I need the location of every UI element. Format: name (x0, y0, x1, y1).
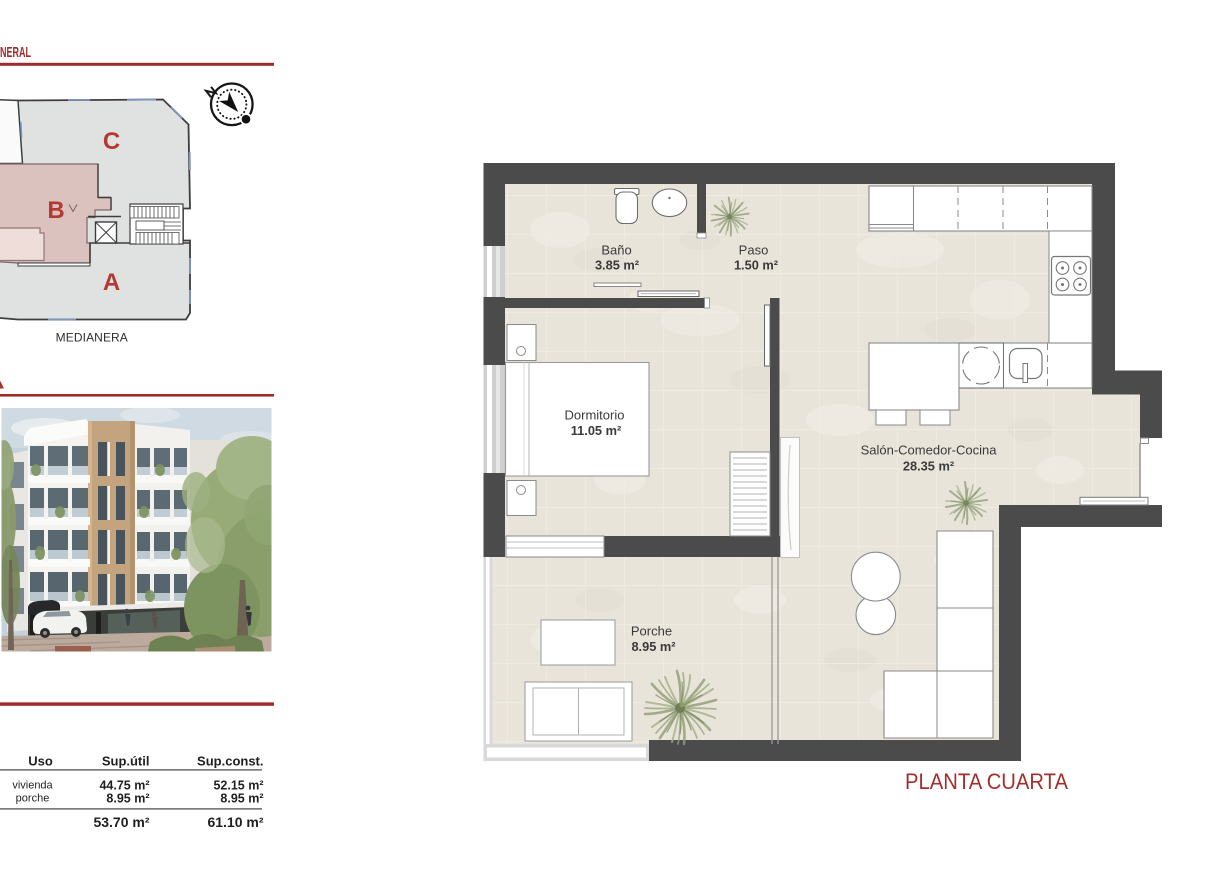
svg-text:61.10 m²: 61.10 m² (207, 814, 263, 830)
svg-text:53.70 m²: 53.70 m² (93, 814, 149, 830)
svg-text:PLANTA CUARTA: PLANTA CUARTA (905, 769, 1068, 794)
svg-text:vivienda: vivienda (12, 780, 53, 792)
svg-text:B: B (47, 197, 64, 224)
svg-text:A: A (103, 269, 120, 296)
svg-text:8.95 m²: 8.95 m² (106, 792, 149, 806)
svg-text:Porche: Porche (631, 624, 672, 639)
svg-text:1.50 m²: 1.50 m² (734, 258, 778, 273)
svg-text:Sup.const.: Sup.const. (197, 754, 263, 769)
svg-text:NERAL: NERAL (0, 44, 31, 61)
svg-text:MEDIANERA: MEDIANERA (56, 331, 128, 345)
svg-text:C: C (103, 128, 120, 155)
svg-text:Dormitorio: Dormitorio (565, 408, 625, 423)
svg-text:Sup.útil: Sup.útil (102, 754, 150, 769)
svg-text:28.35 m²: 28.35 m² (903, 459, 954, 474)
svg-text:Paso: Paso (739, 243, 769, 258)
svg-text:Baño: Baño (601, 243, 631, 258)
svg-text:3.85 m²: 3.85 m² (595, 258, 639, 273)
svg-text:porche: porche (16, 793, 50, 805)
svg-text:8.95 m²: 8.95 m² (631, 639, 675, 654)
svg-text:Uso: Uso (28, 754, 53, 769)
svg-text:Salón-Comedor-Cocina: Salón-Comedor-Cocina (861, 443, 998, 458)
svg-text:52.15 m²: 52.15 m² (213, 779, 263, 793)
svg-text:8.95 m²: 8.95 m² (220, 792, 263, 806)
svg-text:44.75 m²: 44.75 m² (99, 779, 149, 793)
svg-text:11.05 m²: 11.05 m² (571, 423, 622, 438)
